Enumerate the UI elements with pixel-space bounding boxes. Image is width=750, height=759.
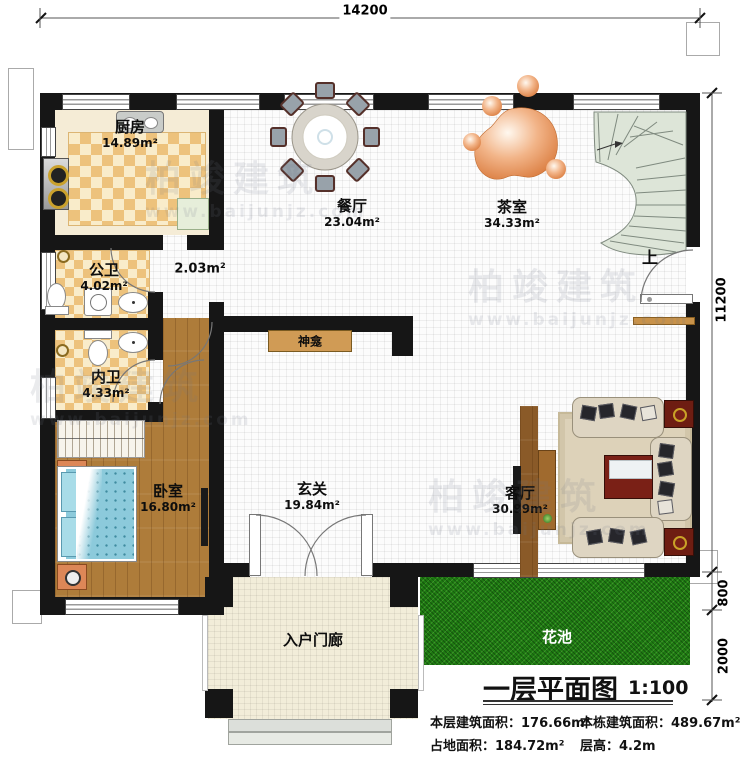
floor-drain <box>57 250 70 263</box>
wall-kitchen-bottom <box>187 235 224 250</box>
wash-basin <box>118 292 148 313</box>
wall-bath <box>148 235 163 250</box>
stairs-up-label: 上 <box>642 244 658 268</box>
nightstand <box>57 564 87 590</box>
window <box>428 94 514 110</box>
stat-building-area: 本栋建筑面积：489.67m² <box>580 712 740 731</box>
title-underline <box>483 700 673 702</box>
hallway-wood-floor <box>163 318 209 420</box>
window <box>41 127 56 157</box>
room-label-flower-bed: 花池 <box>542 628 572 646</box>
corridor-area-label: 2.03m² <box>174 262 225 277</box>
plan-scale: 1:100 <box>628 677 688 699</box>
room-label-dining: 餐厅 23.04m² <box>324 197 380 229</box>
kitchen-stove <box>43 158 69 210</box>
dim-flower-bed: 800 <box>717 576 732 609</box>
porch-rail <box>202 615 208 691</box>
porch-column <box>205 577 233 607</box>
stat-floor-height: 层高：4.2m <box>580 735 656 754</box>
window <box>176 94 260 110</box>
dim-top: 14200 <box>339 4 390 19</box>
window <box>284 94 374 110</box>
kitchen-fridge <box>177 198 209 230</box>
porch-column <box>390 577 418 607</box>
side-door-leaf <box>640 294 693 304</box>
entry-door-leaf <box>361 514 373 576</box>
wall-kitchen-right <box>209 110 224 250</box>
wall-pillar <box>392 316 413 356</box>
window <box>62 94 130 110</box>
window <box>41 377 56 419</box>
wash-basin <box>118 332 148 353</box>
side-table <box>664 528 694 556</box>
flower-bed-grass <box>420 577 690 665</box>
toilet-tank <box>45 306 69 315</box>
side-table <box>664 400 694 428</box>
sofa-bottom <box>572 517 664 558</box>
dim-yard: 2000 <box>717 635 732 677</box>
porch-rail <box>418 615 424 691</box>
floor-plan: 神龛 <box>0 0 750 759</box>
window <box>473 563 645 578</box>
wall-bottom <box>224 563 250 577</box>
wall-kitchen-bottom <box>40 235 155 250</box>
bedroom-tv <box>201 488 208 546</box>
sofa-right <box>650 437 692 521</box>
porch-step <box>228 719 392 732</box>
sofa-top <box>572 397 664 438</box>
porch-column <box>205 689 233 718</box>
room-label-bedroom: 卧室 16.80m² <box>140 482 196 514</box>
window <box>573 94 660 110</box>
wardrobe <box>57 420 145 458</box>
stat-footprint-area: 占地面积：184.72m² <box>430 735 564 754</box>
floor-drain <box>56 344 69 357</box>
wall-bath-divider <box>40 318 148 330</box>
room-label-kitchen: 厨房 14.89m² <box>102 118 158 150</box>
toilet-tank <box>84 330 112 339</box>
wall-bath-right <box>148 292 163 360</box>
corner-marker <box>686 22 720 56</box>
room-label-tearoom: 茶室 34.33m² <box>484 198 540 230</box>
bed <box>57 466 137 562</box>
corner-marker <box>8 68 34 150</box>
window <box>65 599 179 615</box>
wall-bottom <box>372 563 473 577</box>
dim-right: 11200 <box>715 274 730 325</box>
stat-floor-area: 本层建筑面积：176.66m² <box>430 712 590 731</box>
porch-step <box>228 732 392 745</box>
porch-column <box>390 689 418 718</box>
room-label-living-room: 客厅 30.99m² <box>492 484 548 516</box>
corner-marker <box>12 590 42 624</box>
title-underline <box>483 704 673 705</box>
room-label-entry-hall: 玄关 19.84m² <box>284 480 340 512</box>
entry-door-leaf <box>249 514 261 576</box>
room-label-private-bath: 内卫 4.33m² <box>82 368 129 400</box>
room-label-porch: 入户门廊 <box>283 631 343 649</box>
coffee-table <box>604 455 653 499</box>
console-table <box>633 317 695 325</box>
shrine-label: 神龛 <box>298 333 322 350</box>
wall-center-vertical <box>209 302 224 615</box>
room-label-public-bath: 公卫 4.02m² <box>80 261 127 293</box>
toilet <box>88 340 108 366</box>
wall-bottom <box>643 563 700 577</box>
